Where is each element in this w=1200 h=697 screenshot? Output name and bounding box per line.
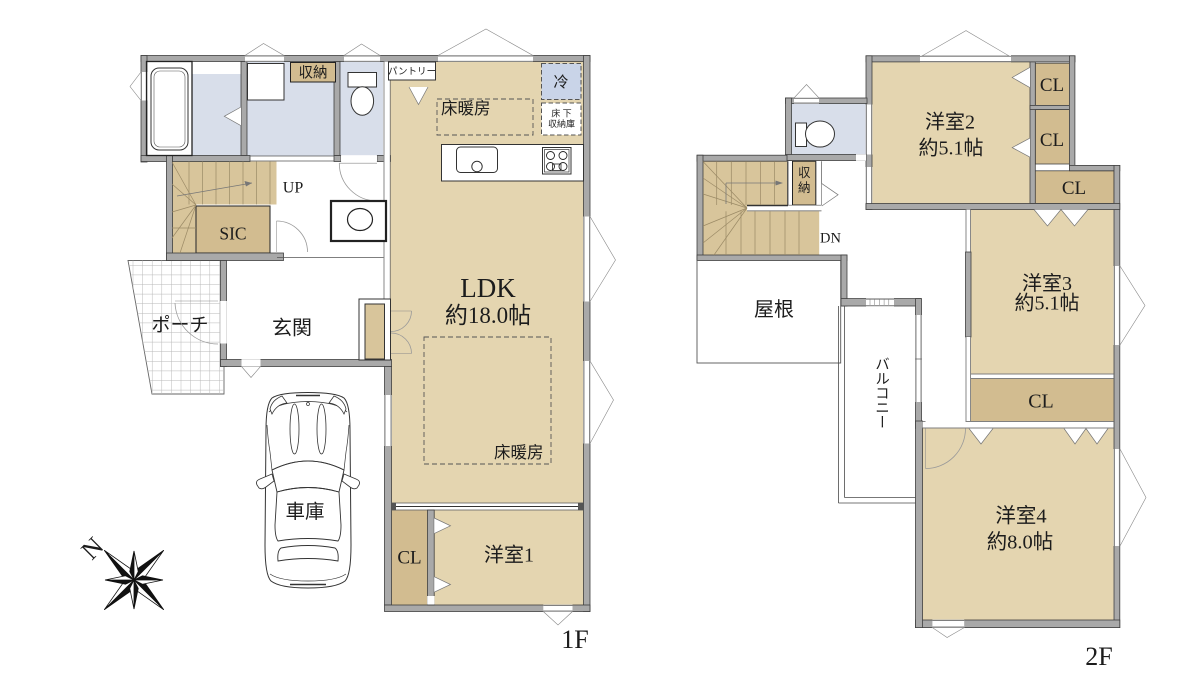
svg-text:約8.0帖: 約8.0帖	[987, 531, 1054, 554]
svg-text:CL: CL	[1028, 391, 1054, 413]
svg-text:パントリー: パントリー	[388, 67, 436, 78]
svg-text:床暖房: 床暖房	[494, 443, 544, 462]
svg-text:屋根: 屋根	[754, 298, 794, 321]
svg-text:収納庫: 収納庫	[548, 118, 575, 129]
svg-text:2F: 2F	[1085, 642, 1112, 671]
svg-text:玄関: 玄関	[272, 317, 312, 340]
svg-text:UP: UP	[283, 180, 304, 197]
svg-text:CL: CL	[397, 548, 421, 569]
svg-text:洋室4: 洋室4	[995, 505, 1046, 528]
svg-text:約18.0帖: 約18.0帖	[445, 303, 531, 328]
svg-text:収: 収	[798, 166, 811, 180]
svg-text:SIC: SIC	[219, 224, 246, 244]
svg-text:洋室2: 洋室2	[925, 111, 975, 134]
svg-text:床 下: 床 下	[551, 108, 571, 119]
svg-text:洋室1: 洋室1	[484, 544, 534, 567]
svg-text:冷: 冷	[553, 74, 568, 91]
svg-text:CL: CL	[1040, 130, 1064, 151]
svg-text:LDK: LDK	[460, 273, 516, 303]
svg-text:納: 納	[798, 181, 811, 195]
svg-text:CL: CL	[1040, 75, 1064, 96]
svg-text:N: N	[75, 531, 109, 565]
svg-text:CL: CL	[1062, 178, 1086, 199]
svg-text:ポーチ: ポーチ	[151, 314, 208, 336]
svg-text:バルコニー: バルコニー	[873, 357, 889, 430]
svg-text:収納: 収納	[299, 65, 328, 82]
svg-text:DN: DN	[820, 231, 841, 247]
svg-text:1F: 1F	[561, 625, 588, 654]
svg-text:約5.1帖: 約5.1帖	[1015, 292, 1080, 315]
svg-text:約5.1帖: 約5.1帖	[919, 137, 984, 160]
svg-text:車庫: 車庫	[285, 501, 324, 523]
svg-text:床暖房: 床暖房	[441, 99, 491, 118]
